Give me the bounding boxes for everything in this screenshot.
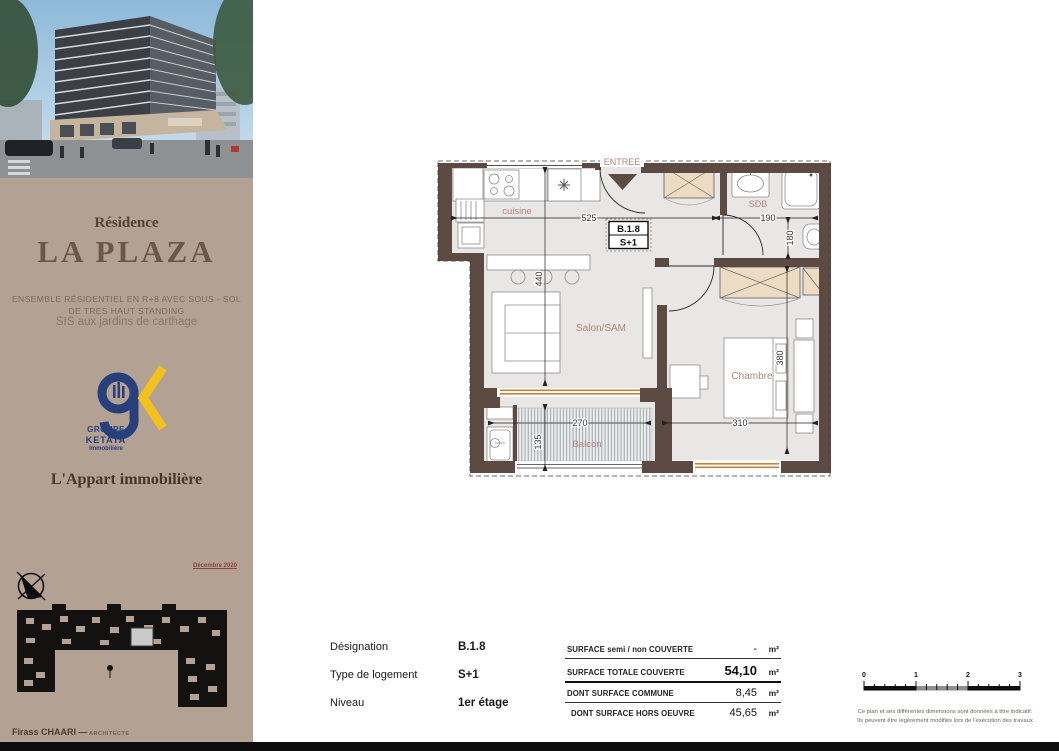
nightstand [796,414,813,433]
unit-type: S+1 [620,238,638,249]
logo-name-text: KETATA [0,435,212,445]
tagline-line1: ENSEMBLE RÉSIDENTIEL EN R+8 AVEC SOUS - … [0,294,253,304]
surface-value: - [715,643,757,655]
surface-unit: m² [757,667,779,677]
agency-name: L'Appart immobilière [0,471,253,489]
disclaimer-line1: Ce plan et ses différentes dimensions so… [855,708,1035,717]
table-row: DONT SURFACE COMMUNE 8,45 m² [565,683,781,703]
detail-label: Désignation [330,641,458,653]
architect-name: Firass CHAARI [12,727,76,737]
living-window [500,390,640,392]
dim-bath-width: 190 [760,213,775,223]
desk-chair [700,376,708,389]
table-row: Désignation B.1.8 [330,641,560,669]
architect-credit: Firass CHAARI — ARCHITECTE [12,727,130,737]
logo-k-chevron [143,368,163,428]
surface-label: SURFACE TOTALE COUVERTE [567,668,715,677]
table-row: SURFACE semi / non COUVERTE - m² [565,639,781,659]
scale-tick-3: 3 [1018,672,1022,679]
detail-value: S+1 [458,669,479,681]
detail-value: B.1.8 [458,641,486,653]
kitchen-label: cuisine [502,206,532,217]
entrance-label: ENTREE [604,157,641,167]
detail-value: 1er étage [458,697,509,709]
plan-disclaimer: Ce plan et ses différentes dimensions so… [855,708,1035,725]
surface-unit: m² [757,644,779,654]
floor-plan-drawing: 525 190 180 440 380 310 270 135 B.1.8 S+… [437,155,832,478]
bicycle [231,146,239,152]
tagline-line3: SIS aux jardins de carthage [0,316,253,328]
bedroom-label: Chambre [731,371,773,382]
building-render-image [0,0,253,178]
surface-value: 54,10 [715,663,757,678]
surface-unit: m² [757,688,779,698]
table-row: Niveau 1er étage [330,697,560,725]
project-name: LA PLAZA [0,234,253,270]
unit-code-box: B.1.8 S+1 [606,219,651,251]
dim-bedroom-height: 380 [775,350,785,365]
architect-dash: — [79,727,87,737]
bathroom-label: SDB [749,199,768,209]
table-row: SURFACE TOTALE COUVERTE 54,10 m² [565,659,781,683]
scale-tick-0: 0 [862,672,866,679]
surface-value: 8,45 [715,687,757,699]
living-label: Salon/SAM [576,323,626,334]
table-row: DONT SURFACE HORS OEUVRE 45,65 m² [565,703,781,722]
surface-label: DONT SURFACE COMMUNE [567,689,715,698]
dim-balcony-width: 270 [572,418,587,428]
scale-tick-2: 2 [966,672,970,679]
surfaces-table: SURFACE semi / non COUVERTE - m² SURFACE… [565,639,781,722]
dim-living-height: 440 [534,271,544,286]
dim-bedroom-width: 310 [732,418,747,428]
dim-bath-height: 180 [785,230,795,245]
unit-code: B.1.8 [617,224,640,235]
detail-label: Type de logement [330,669,458,681]
wardrobe [794,340,814,412]
stove [484,170,519,199]
pillow [776,381,786,410]
kitchen-island [487,255,590,270]
surface-value: 45,65 [715,707,757,719]
site-plan-marker [107,665,113,671]
architect-title: ARCHITECTE [89,731,129,737]
dim-kitchen-width: 525 [581,213,596,223]
balcony-label: Balcon [572,439,601,450]
unit-details-table: Désignation B.1.8 Type de logement S+1 N… [330,641,560,725]
tagline-line2: DE TRES HAUT STANDING [0,306,253,316]
dim-balcony-height: 135 [533,434,543,449]
dishwasher [456,199,484,222]
groupe-ketata-logo [60,360,192,470]
shower [782,167,820,209]
plan-sheet: { "sidebar": { "residence_label": "Résid… [0,0,1059,751]
detail-label: Niveau [330,697,458,709]
car [5,140,53,156]
laundry-shelf [487,407,513,419]
logo-subtitle-text: Immobilière [0,446,212,452]
surface-label: SURFACE semi / non COUVERTE [567,645,715,654]
scale-bar-graphic [862,681,1024,695]
car [112,138,142,149]
surface-unit: m² [757,708,779,718]
sidebar-panel: Résidence LA PLAZA ENSEMBLE RÉSIDENTIEL … [0,0,253,742]
nightstand [796,319,813,338]
scale-bar: 0 1 2 3 [862,672,1024,696]
plan-date: Décembre 2020 [193,563,237,569]
site-plan-core [131,628,153,646]
bedroom-window [695,463,779,465]
building-render-art [0,0,253,178]
site-key-plan [12,600,242,715]
bottom-bar [0,742,1059,751]
tv-console [643,288,652,358]
table-row: Type de logement S+1 [330,669,560,697]
logo-group-text: GROUPE [0,425,212,434]
desk [670,365,700,398]
scale-tick-1: 1 [914,672,918,679]
disclaimer-line2: Ils peuvent être légèrement modifiés lor… [855,717,1035,726]
residence-label: Résidence [0,215,253,232]
surface-label: DONT SURFACE HORS OEUVRE [567,709,715,718]
